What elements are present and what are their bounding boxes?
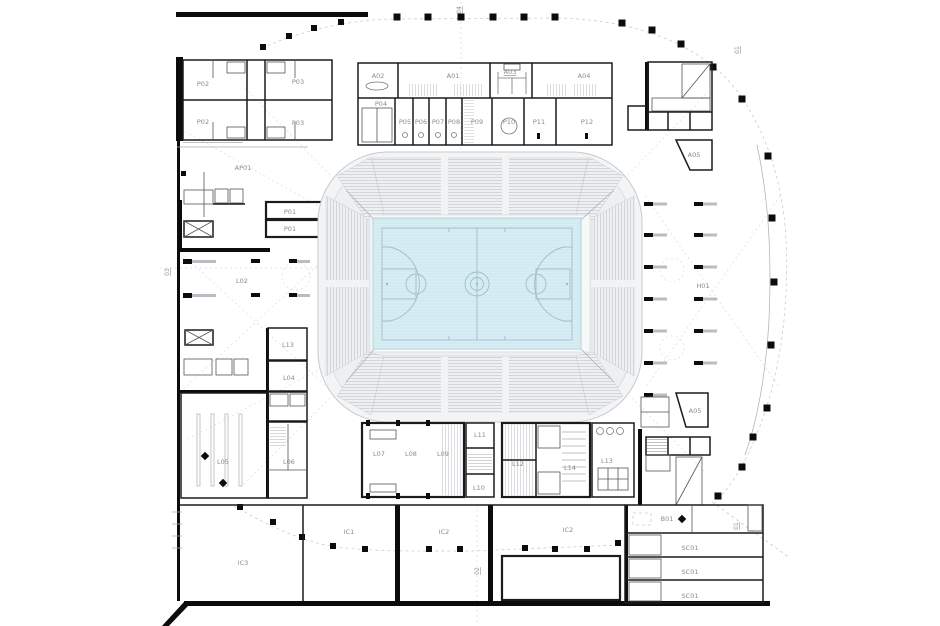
room-label: A02 [372, 72, 385, 80]
room-label: P04 [375, 100, 387, 108]
room-label: H01 [696, 282, 709, 290]
room-label: L09 [437, 450, 449, 458]
room-label: B01 [661, 515, 674, 523]
room-label: L02 [236, 277, 248, 285]
room-label: SC01 [682, 544, 699, 552]
floor-plan-drawing: P02P02P03P03A02A01A03A04P04P05P06P07P08P… [0, 0, 940, 626]
grid-axis-label: 02 [474, 567, 481, 575]
room-label: A05 [689, 407, 702, 415]
room-label: L06 [283, 458, 295, 466]
grid-axis-label: 01 [733, 522, 740, 530]
room-label: A04 [578, 72, 591, 80]
room-label: P07 [432, 118, 444, 126]
room-label: L05 [217, 458, 229, 466]
room-label: IC3 [238, 559, 249, 567]
room-label: IC2 [563, 526, 574, 534]
grid-axis-label: 04 [456, 6, 463, 14]
room-label: AP01 [235, 164, 252, 172]
room-label: P03 [292, 78, 304, 86]
room-label: L07 [373, 450, 385, 458]
room-label: L11 [474, 431, 486, 439]
room-label: SC01 [682, 568, 699, 576]
room-label: L08 [405, 450, 417, 458]
room-label: IC2 [439, 528, 450, 536]
room-label: P02 [197, 80, 209, 88]
room-label: L10 [473, 484, 485, 492]
room-label: P05 [399, 118, 411, 126]
room-label: P12 [581, 118, 593, 126]
room-label: P10 [503, 118, 515, 126]
grid-axis-label: 03 [164, 268, 171, 276]
room-label: P11 [533, 118, 545, 126]
room-label: A01 [447, 72, 460, 80]
room-label: P01 [284, 208, 296, 216]
room-label: A05 [688, 151, 701, 159]
arena-bowl [318, 152, 642, 422]
basketball-court [373, 218, 581, 349]
room-label: L14 [564, 464, 576, 472]
room-label: P08 [448, 118, 460, 126]
room-label: IC1 [344, 528, 355, 536]
room-label: P02 [197, 118, 209, 126]
room-label: L12 [512, 460, 524, 468]
room-label: P06 [415, 118, 427, 126]
room-label: P01 [284, 225, 296, 233]
room-label: P03 [292, 119, 304, 127]
room-label: L04 [283, 374, 295, 382]
floor-plan-page: P02P02P03P03A02A01A03A04P04P05P06P07P08P… [0, 0, 940, 626]
room-label: L13 [601, 457, 613, 465]
room-label: A03 [504, 68, 517, 76]
room-label: P09 [471, 118, 483, 126]
grid-axis-label: 01 [734, 46, 741, 54]
room-label: L13 [282, 341, 294, 349]
room-label: SC01 [682, 592, 699, 600]
